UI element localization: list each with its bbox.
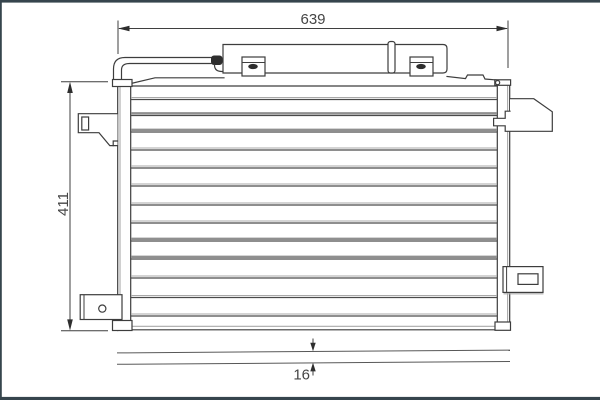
bracket-slot: [82, 117, 89, 130]
dimension-depth-label: 16: [293, 367, 310, 384]
condenser-core: [117, 98, 510, 330]
inlet-pipe: [113, 56, 223, 87]
dimension-width-label: 639: [300, 11, 325, 28]
mounting-bracket-top-right: [494, 99, 553, 132]
tank-bottom-cap: [113, 321, 133, 331]
arrow-down-icon: [310, 343, 315, 352]
mounting-bracket-bottom-left: [80, 295, 122, 320]
bracket-hole: [99, 305, 106, 312]
arrow-up-icon: [67, 82, 73, 93]
bracket-slot: [518, 274, 538, 285]
image-frame-left: [0, 0, 2, 400]
image-frame-top: [0, 0, 600, 3]
top-plate-clip: [447, 75, 497, 80]
screw-icon: [416, 64, 426, 69]
header-tank: [223, 42, 447, 77]
arrow-left-icon: [118, 26, 130, 32]
tank-bottom-cap: [495, 322, 511, 330]
mounting-bracket-top-left: [78, 114, 117, 146]
drawing-canvas: 639 411: [0, 0, 600, 400]
tank-top-cap: [113, 80, 133, 87]
arrow-down-icon: [67, 319, 73, 330]
dimension-height-label: 411: [55, 192, 72, 216]
dimension-depth: 16: [293, 339, 315, 384]
condenser-technical-drawing: 639 411: [0, 0, 600, 400]
condenser-front-view: [78, 42, 552, 331]
mounting-bracket-bottom-right: [503, 267, 544, 294]
left-tank: [118, 84, 131, 331]
arrow-up-icon: [310, 363, 315, 372]
header-divider-tube: [388, 42, 395, 74]
screw-icon: [248, 64, 258, 69]
tank-pin: [496, 81, 500, 85]
core-top-plate: [131, 75, 497, 86]
side-profile-view: [117, 350, 510, 364]
pipe-fitting: [211, 56, 223, 66]
arrow-right-icon: [497, 26, 509, 32]
